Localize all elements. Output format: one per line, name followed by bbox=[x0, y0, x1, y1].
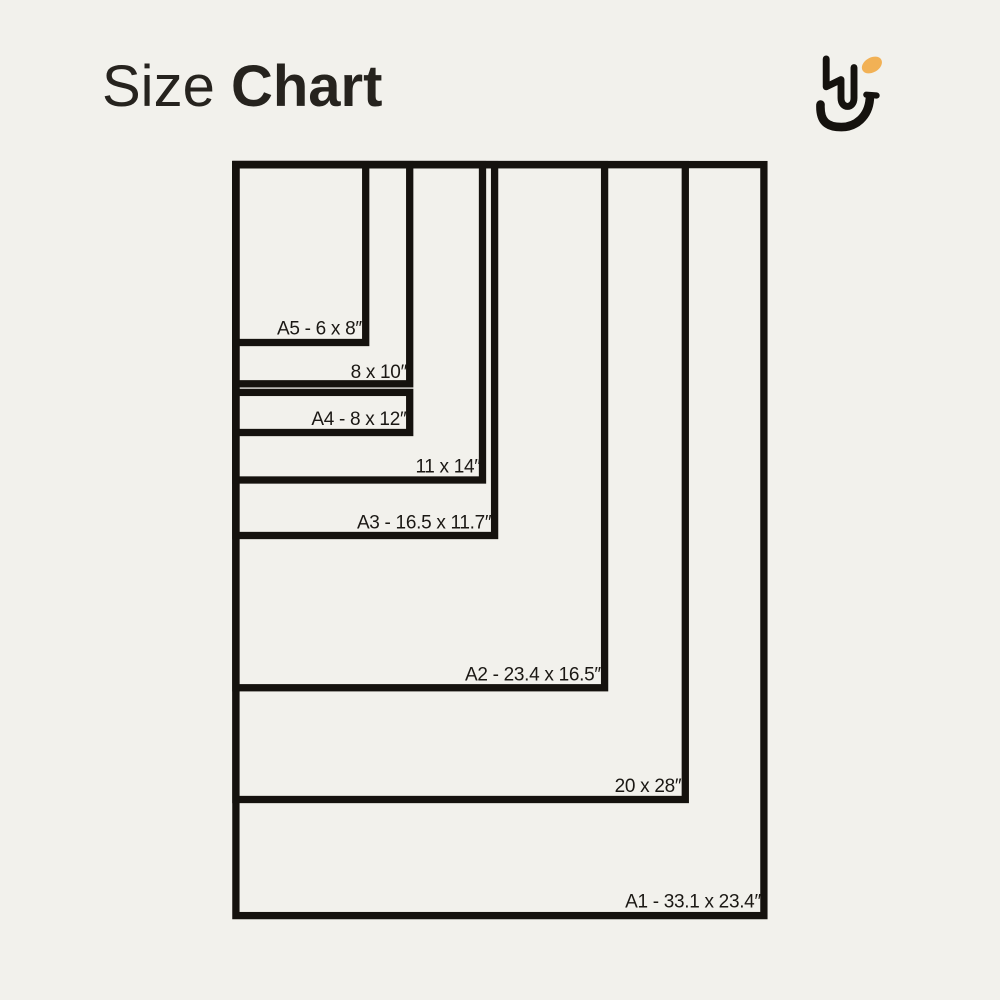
svg-text:A2 - 23.4 x 16.5″: A2 - 23.4 x 16.5″ bbox=[465, 665, 601, 686]
svg-text:A3 - 16.5 x 11.7″: A3 - 16.5 x 11.7″ bbox=[357, 512, 492, 533]
svg-text:A4 - 8 x 12″: A4 - 8 x 12″ bbox=[311, 409, 407, 430]
svg-text:11 x 14″: 11 x 14″ bbox=[415, 457, 481, 478]
svg-text:A5 - 6 x 8″: A5 - 6 x 8″ bbox=[277, 319, 362, 340]
svg-text:8 x 10″: 8 x 10″ bbox=[351, 362, 408, 383]
svg-text:A1 - 33.1 x 23.4″: A1 - 33.1 x 23.4″ bbox=[625, 892, 761, 913]
svg-text:20 x 28″: 20 x 28″ bbox=[615, 776, 682, 797]
